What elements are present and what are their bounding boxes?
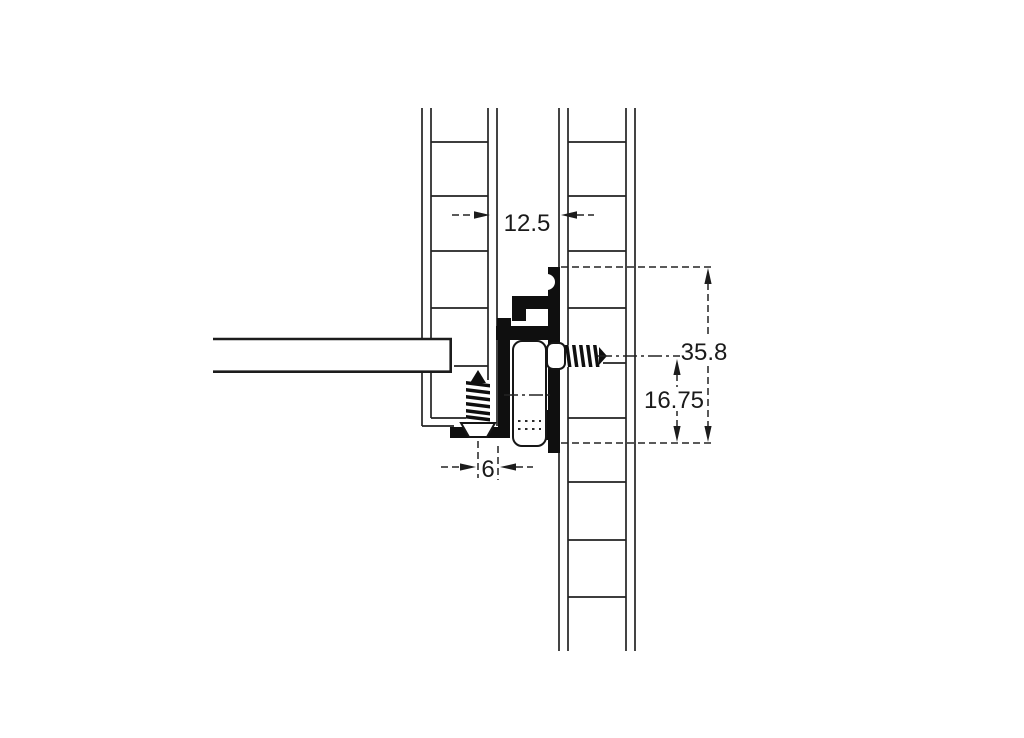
screw-tip	[470, 370, 486, 383]
drawer-bottom-panel	[213, 339, 451, 372]
vertical-mounting-screw	[461, 370, 495, 437]
dim-label-screw-offset: 6	[481, 456, 494, 483]
drawer-slide-cross-section-drawing: 12.5 35.8 16.75 6	[0, 0, 1024, 738]
dim-label-axis-to-bottom: 16.75	[644, 387, 704, 414]
rail-rolled-edge-notch	[539, 274, 555, 290]
dim-screw-offset: 6	[441, 441, 533, 483]
dim-label-total-height: 35.8	[681, 339, 728, 366]
dim-label-panel-gap: 12.5	[504, 210, 551, 237]
drawer-side-panel	[422, 108, 497, 426]
dim-total-height: 35.8	[680, 268, 728, 442]
technical-drawing-canvas: 12.5 35.8 16.75 6	[0, 0, 1024, 738]
dim-axis-to-bottom: 16.75	[644, 359, 704, 442]
cabinet-side-panel	[559, 108, 635, 651]
dim-panel-gap: 12.5	[452, 210, 594, 237]
horizontal-mounting-screw	[547, 343, 682, 369]
screw-head	[547, 343, 565, 369]
